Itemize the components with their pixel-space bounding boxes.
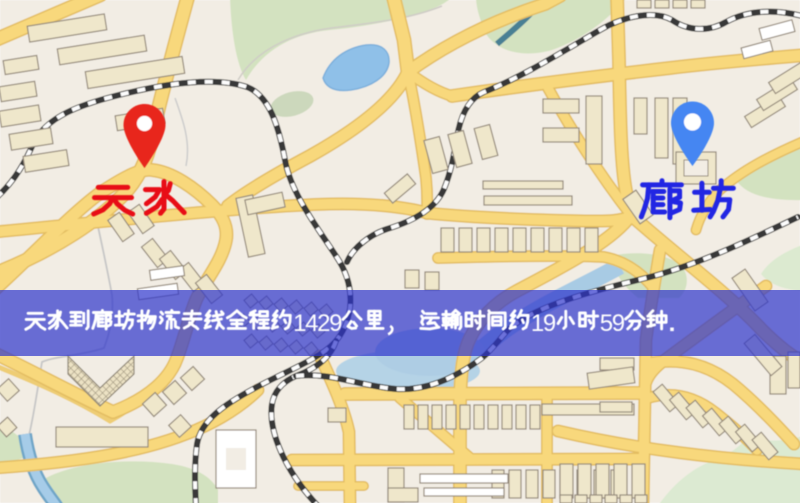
svg-text:9: 9: [329, 310, 342, 337]
svg-text:9: 9: [612, 310, 625, 337]
svg-text:9: 9: [543, 310, 556, 337]
